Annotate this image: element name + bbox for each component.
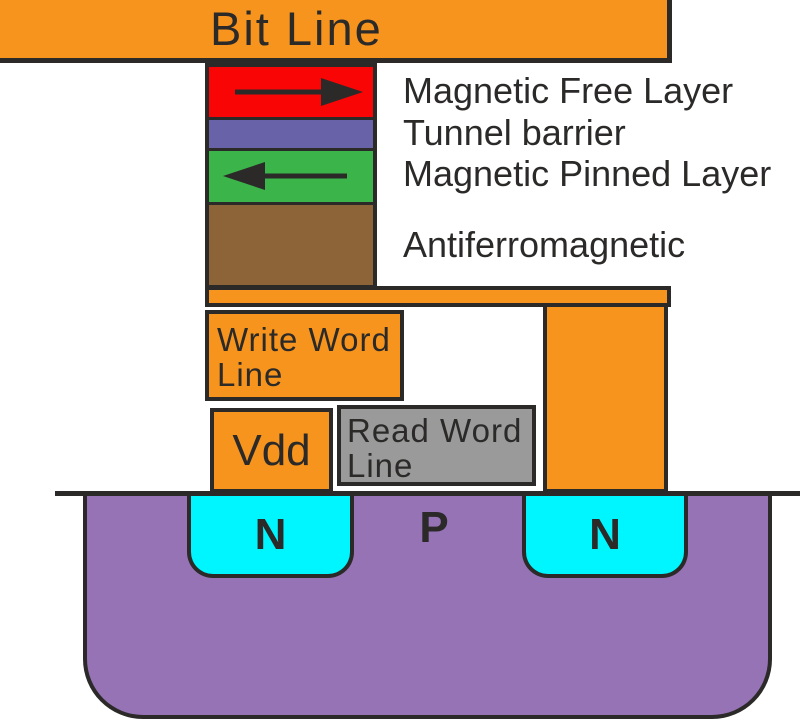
read-word-line-label-line1: Read Word xyxy=(347,413,532,448)
magnetic-pinned-layer-shape xyxy=(209,151,373,202)
magnetic-pinned-layer-annotation: Magnetic Pinned Layer xyxy=(403,152,771,196)
magnetic-free-layer-annotation: Magnetic Free Layer xyxy=(403,69,733,113)
n-well-left: N xyxy=(187,496,354,578)
write-word-line-box: Write Word Line xyxy=(205,310,404,401)
magnetic-free-layer-shape xyxy=(209,67,373,117)
antiferromagnetic-annotation: Antiferromagnetic xyxy=(403,223,685,267)
n-well-right-label: N xyxy=(589,510,621,560)
read-word-line-label-line2: Line xyxy=(347,448,532,483)
mram-cell-diagram: N N P Bit Line Write Word Line xyxy=(0,0,800,719)
magnetization-right-arrow-icon xyxy=(209,67,373,117)
bottom-electrode-strap xyxy=(205,286,671,307)
tunnel-barrier-shape xyxy=(209,120,373,148)
write-word-line-label-line1: Write Word xyxy=(217,322,400,357)
vdd-contact-box: Vdd xyxy=(210,408,333,493)
antiferromagnetic-layer-shape xyxy=(209,205,373,285)
magnetization-left-arrow-icon xyxy=(209,151,373,202)
bit-line-label: Bit Line xyxy=(210,3,383,55)
n-well-left-label: N xyxy=(255,510,287,560)
p-body-label: P xyxy=(404,503,464,553)
bit-line-bar: Bit Line xyxy=(0,0,672,63)
write-word-line-label-line2: Line xyxy=(217,357,400,392)
vdd-label: Vdd xyxy=(232,426,310,476)
n-well-right: N xyxy=(522,496,688,578)
read-word-line-box: Read Word Line xyxy=(337,405,536,486)
tunnel-barrier-annotation: Tunnel barrier xyxy=(403,111,626,155)
drain-contact-via xyxy=(543,307,668,493)
mtj-stack xyxy=(205,63,377,289)
